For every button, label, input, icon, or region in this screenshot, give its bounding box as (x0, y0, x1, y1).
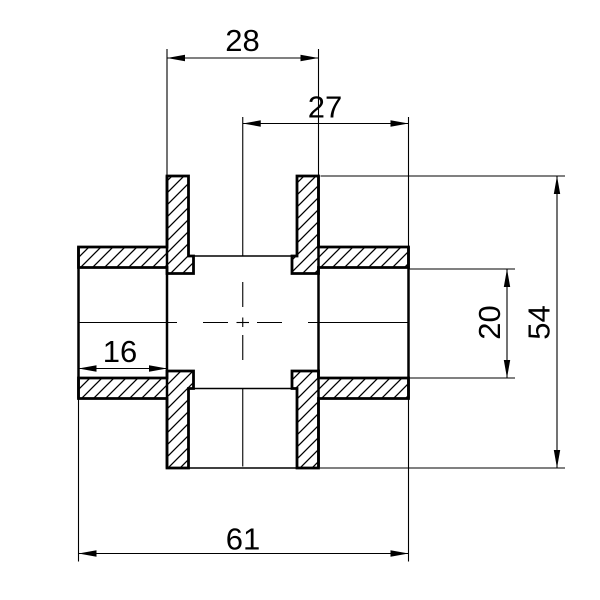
section-wall-bottom-right (292, 371, 409, 468)
arrowhead-bottom (554, 450, 560, 468)
arrowhead-right (149, 365, 167, 371)
dimension-label: 20 (472, 305, 507, 339)
centerlines (79, 176, 409, 467)
arrowhead-top (554, 176, 560, 194)
dimension-label: 61 (226, 522, 260, 557)
arrowhead-left (167, 55, 185, 61)
arrowhead-top (504, 269, 510, 287)
arrowhead-left (79, 365, 97, 371)
dimension-label: 27 (308, 90, 342, 125)
arrowhead-right (391, 120, 409, 126)
dimension-16: 16 (79, 334, 168, 372)
section-wall-top-right (292, 176, 409, 274)
technical-drawing: 28 27 16 20 54 (0, 0, 600, 600)
dimension-label: 16 (103, 334, 137, 369)
dimension-61: 61 (79, 399, 409, 562)
section-wall-top-left (79, 176, 194, 274)
arrowhead-right (301, 55, 319, 61)
dimension-label: 54 (522, 305, 557, 339)
arrowhead-left (79, 550, 97, 556)
dimension-20: 20 (410, 269, 516, 378)
dimension-label: 28 (225, 23, 259, 58)
arrowhead-left (243, 120, 261, 126)
arrowhead-right (391, 550, 409, 556)
arrowhead-bottom (504, 360, 510, 378)
dimension-27: 27 (243, 90, 409, 248)
drawing-sheet: 28 27 16 20 54 (0, 0, 600, 600)
section-wall-bottom-left (79, 371, 194, 468)
